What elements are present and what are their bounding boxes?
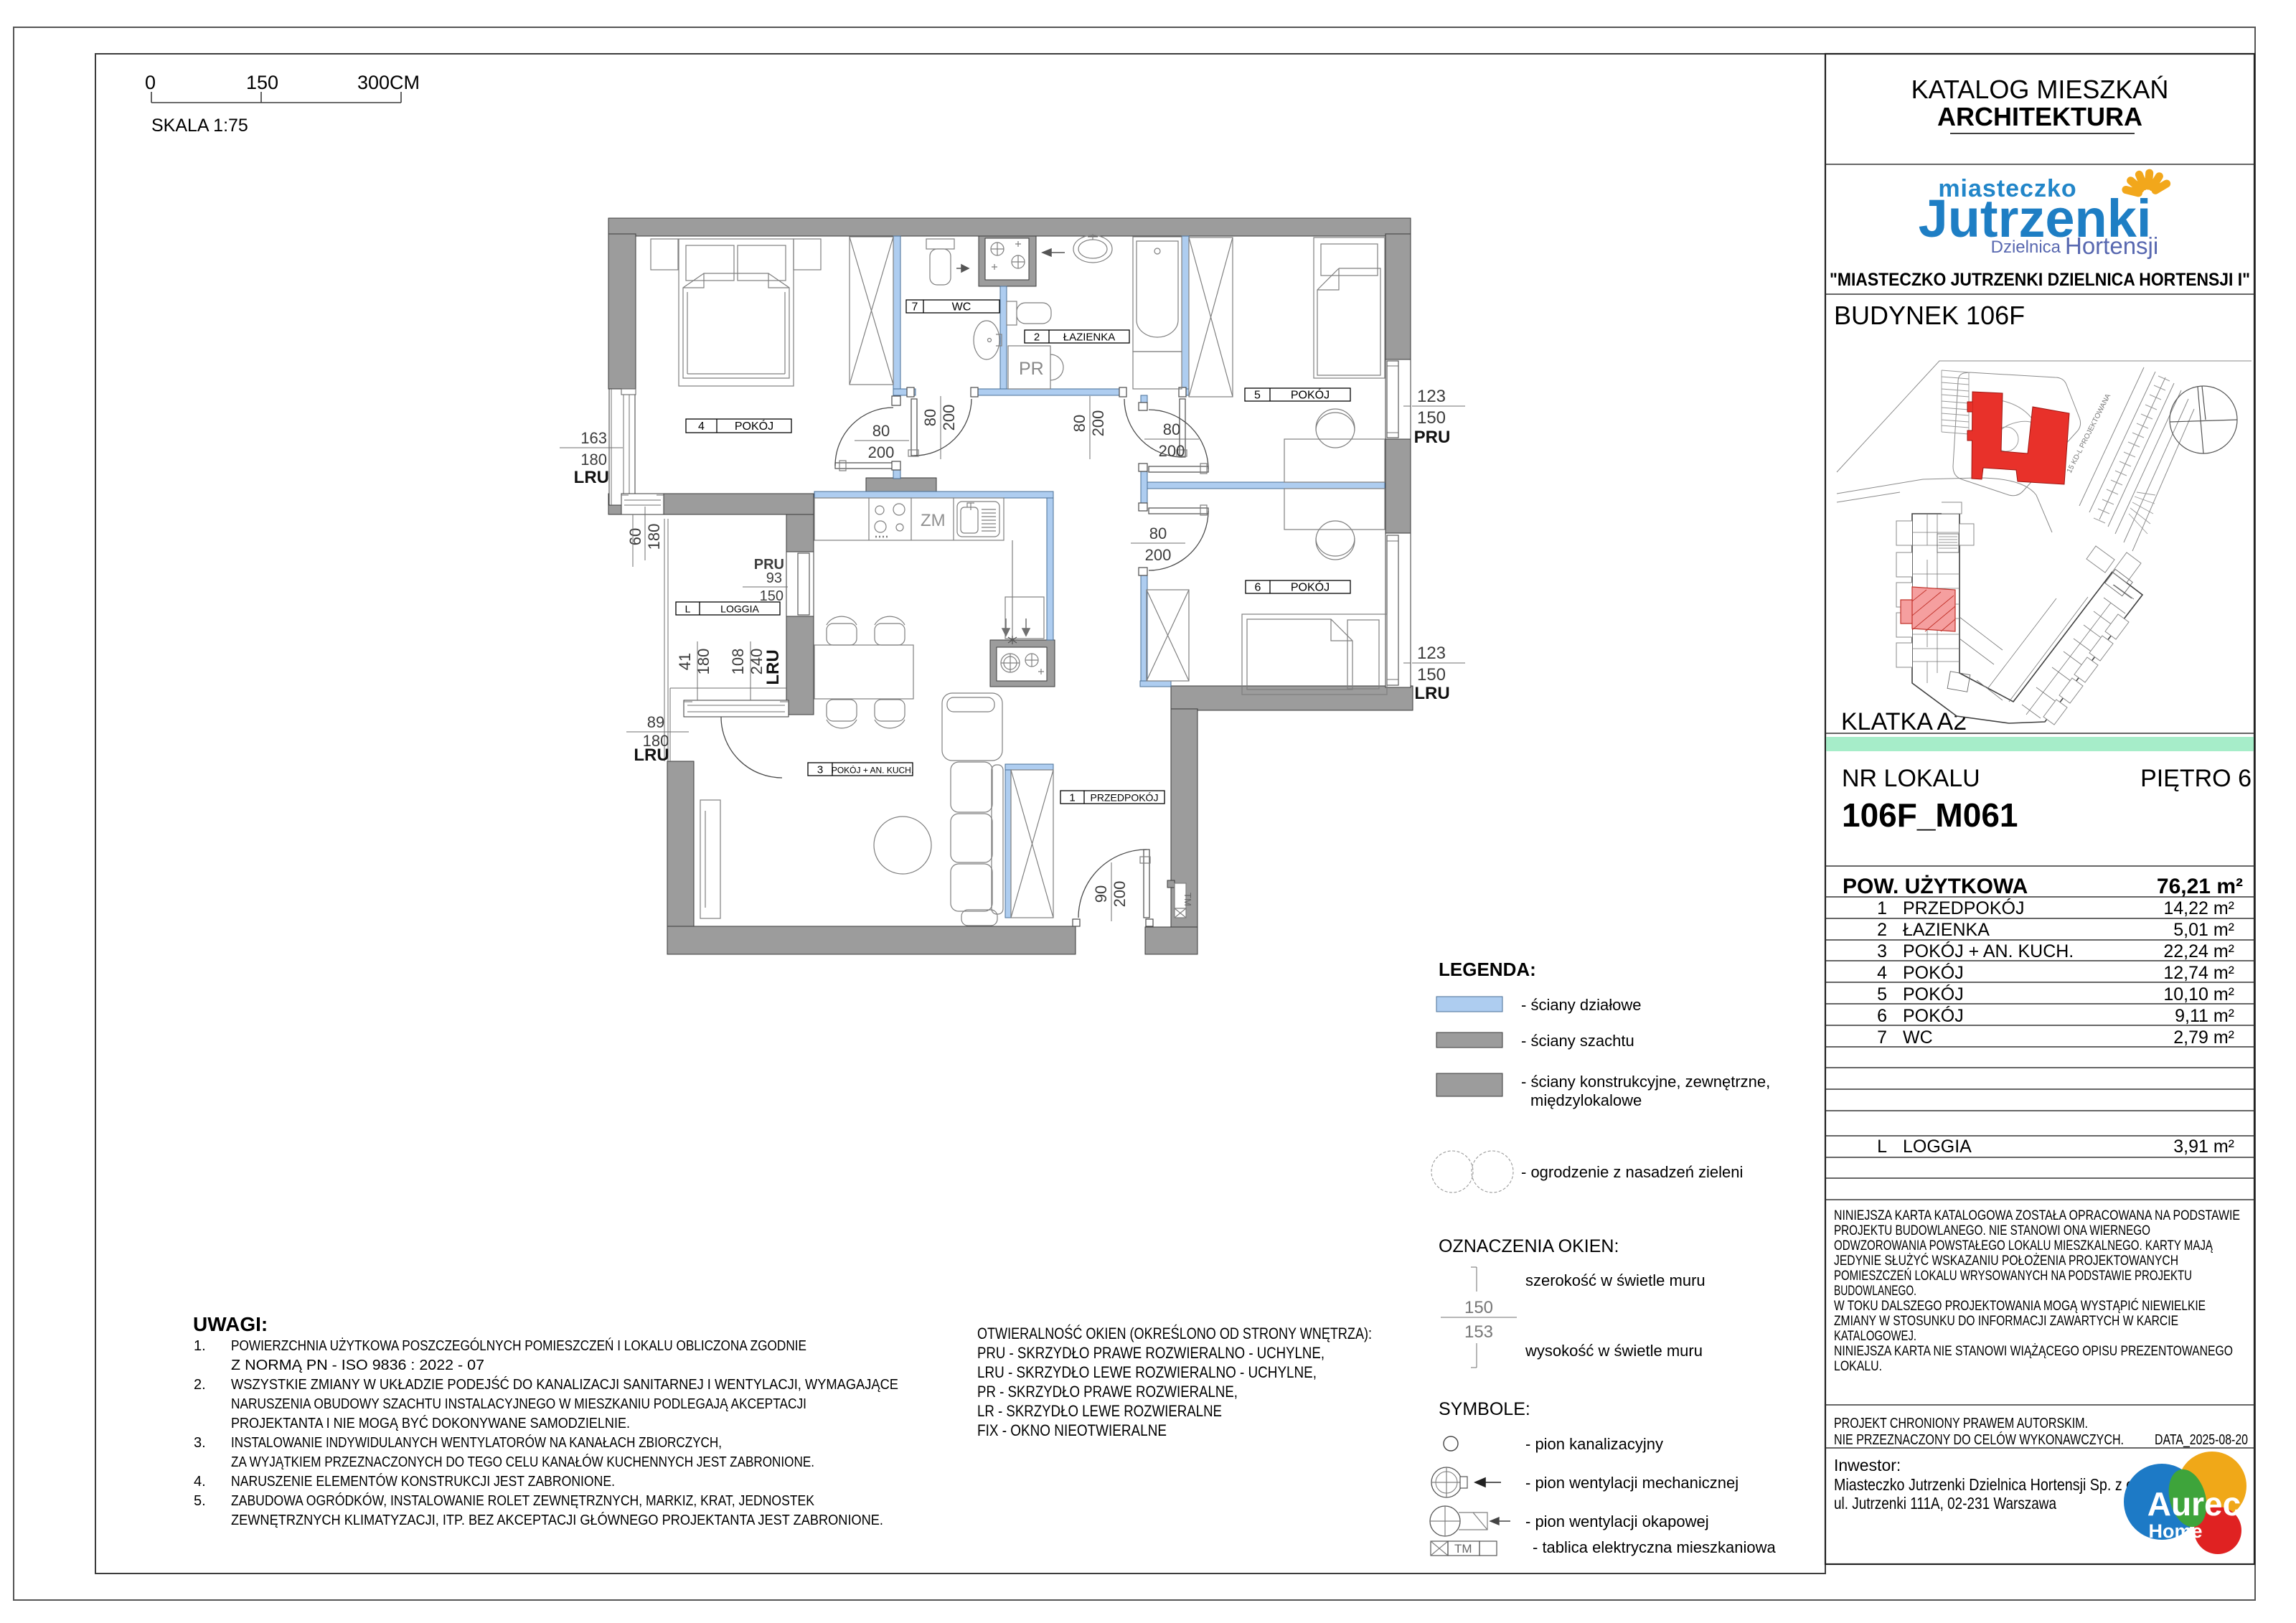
svg-text:BUDOWLANEGO.: BUDOWLANEGO. — [1834, 1284, 1916, 1299]
svg-text:PR - SKRZYDŁO PRAWE ROZWIERALN: PR - SKRZYDŁO PRAWE ROZWIERALNE, — [977, 1383, 1238, 1401]
svg-text:TM: TM — [1182, 893, 1193, 906]
svg-text:PROJEKT CHRONIONY PRAWEM AUTOR: PROJEKT CHRONIONY PRAWEM AUTORSKIM. — [1834, 1416, 2088, 1431]
svg-text:PIĘTRO 6: PIĘTRO 6 — [2140, 765, 2252, 792]
svg-text:200: 200 — [940, 405, 958, 431]
svg-text:KLATKA A2: KLATKA A2 — [1841, 708, 1967, 735]
svg-text:POKÓJ: POKÓJ — [1903, 1005, 1964, 1026]
svg-text:PRU - SKRZYDŁO PRAWE ROZWIERAL: PRU - SKRZYDŁO PRAWE ROZWIERALNO - UCHYL… — [977, 1344, 1325, 1362]
svg-text:90: 90 — [1092, 885, 1110, 903]
svg-text:OZNACZENIA OKIEN:: OZNACZENIA OKIEN: — [1439, 1236, 1619, 1256]
svg-text:4: 4 — [698, 420, 705, 433]
svg-text:80: 80 — [1149, 524, 1167, 542]
svg-text:POKÓJ: POKÓJ — [1291, 388, 1330, 402]
svg-text:Home: Home — [2148, 1520, 2202, 1542]
svg-text:180: 180 — [645, 524, 663, 550]
svg-text:POMIESZCZEŃ LOKALU WRYSOWANYCH: POMIESZCZEŃ LOKALU WRYSOWANYCH NA PODSTA… — [1834, 1269, 2192, 1284]
svg-text:80: 80 — [921, 409, 939, 426]
svg-text:1: 1 — [1877, 898, 1887, 918]
svg-text:NIE PRZEZNACZONY DO CELÓW WYKO: NIE PRZEZNACZONY DO CELÓW WYKONAWCZYCH. — [1834, 1431, 2124, 1448]
svg-text:Inwestor:: Inwestor: — [1834, 1456, 1901, 1474]
svg-text:LRU: LRU — [1414, 684, 1449, 703]
svg-text:Aurec: Aurec — [2147, 1485, 2241, 1523]
svg-text:93: 93 — [766, 570, 782, 586]
svg-text:108: 108 — [729, 649, 747, 675]
svg-text:300CM: 300CM — [357, 72, 420, 93]
svg-text:106F_M061: 106F_M061 — [1842, 796, 2018, 834]
svg-text:7: 7 — [912, 301, 918, 314]
svg-text:SYMBOLE:: SYMBOLE: — [1439, 1399, 1530, 1419]
svg-text:2: 2 — [1034, 331, 1040, 344]
svg-text:3.: 3. — [194, 1435, 206, 1451]
svg-text:153: 153 — [1464, 1322, 1493, 1342]
svg-text:80: 80 — [1071, 415, 1088, 432]
svg-text:6: 6 — [1877, 1006, 1887, 1026]
svg-text:PROJEKTU BUDOWLANEGO. NIE STAN: PROJEKTU BUDOWLANEGO. NIE STANOWI ONA WI… — [1834, 1223, 2150, 1238]
svg-text:- pion wentylacji mechanicznej: - pion wentylacji mechanicznej — [1525, 1474, 1739, 1492]
svg-text:80: 80 — [1163, 420, 1180, 438]
svg-text:TM: TM — [1454, 1542, 1472, 1556]
svg-text:WC: WC — [952, 301, 971, 314]
svg-text:LRU: LRU — [763, 649, 783, 685]
svg-text:ZEWNĘTRZNYCH KLIMATYZACJI, IT: ZEWNĘTRZNYCH KLIMATYZACJI, ITP. BEZ AKCE… — [231, 1512, 883, 1528]
svg-text:NINIEJSZA KARTA NIE STANOWI WI: NINIEJSZA KARTA NIE STANOWI WIĄŻĄCEGO OP… — [1834, 1344, 2233, 1359]
svg-text:wysokość w świetle muru: wysokość w świetle muru — [1525, 1342, 1703, 1360]
svg-text:L: L — [1877, 1137, 1887, 1157]
svg-text:NARUSZENIA OBUDOWY SZACHTU INS: NARUSZENIA OBUDOWY SZACHTU INSTALACYJNEG… — [231, 1396, 806, 1412]
svg-text:200: 200 — [868, 443, 895, 461]
svg-text:150: 150 — [1417, 408, 1446, 428]
svg-text:POKÓJ + AN. KUCH.: POKÓJ + AN. KUCH. — [832, 765, 913, 776]
svg-text:LRU: LRU — [634, 745, 669, 765]
svg-text:WSZYSTKIE ZMIANY W UKŁADZIE PO: WSZYSTKIE ZMIANY W UKŁADZIE PODEJŚĆ DO K… — [231, 1375, 898, 1393]
svg-text:"MIASTECZKO JUTRZENKI DZIELNIC: "MIASTECZKO JUTRZENKI DZIELNICA HORTENSJ… — [1830, 270, 2250, 290]
svg-text:- pion wentylacji okapowej: - pion wentylacji okapowej — [1525, 1513, 1709, 1530]
svg-text:ZABUDOWA OGRÓDKÓW, INSTALOWANI: ZABUDOWA OGRÓDKÓW, INSTALOWANIE ROLET ZE… — [231, 1492, 815, 1509]
svg-text:12,74 m²: 12,74 m² — [2163, 963, 2234, 983]
svg-text:180: 180 — [695, 649, 712, 675]
svg-text:150: 150 — [246, 72, 278, 93]
svg-text:INSTALOWANIE INDYWIDULANYCH WE: INSTALOWANIE INDYWIDULANYCH WENTYLATORÓW… — [231, 1434, 722, 1451]
svg-text:5: 5 — [1877, 984, 1887, 1005]
svg-text:POKÓJ: POKÓJ — [1903, 962, 1964, 983]
svg-text:200: 200 — [1159, 442, 1185, 460]
svg-text:NINIEJSZA KARTA KATALOGOWA ZOS: NINIEJSZA KARTA KATALOGOWA ZOSTAŁA OPRAC… — [1834, 1208, 2240, 1223]
svg-text:- ściany działowe: - ściany działowe — [1521, 996, 1642, 1014]
svg-text:60: 60 — [626, 528, 644, 545]
svg-text:LRU - SKRZYDŁO LEWE ROZWIERALN: LRU - SKRZYDŁO LEWE ROZWIERALNO - UCHYLN… — [977, 1363, 1317, 1381]
svg-text:5: 5 — [1254, 390, 1261, 402]
svg-text:9,11 m²: 9,11 m² — [2175, 1006, 2234, 1026]
svg-text:0: 0 — [145, 72, 156, 93]
svg-text:międzylokalowe: międzylokalowe — [1530, 1091, 1642, 1109]
svg-text:ZA WYJĄTKIEM PRZEZNACZONYCH DO: ZA WYJĄTKIEM PRZEZNACZONYCH DO TEGO CELU… — [231, 1454, 814, 1470]
svg-text:2.: 2. — [194, 1377, 206, 1393]
svg-text:123: 123 — [1417, 387, 1446, 406]
svg-text:KATALOG MIESZKAŃ: KATALOG MIESZKAŃ — [1911, 75, 2169, 104]
svg-text:LR - SKRZYDŁO LEWE ROZWIERALNE: LR - SKRZYDŁO LEWE ROZWIERALNE — [977, 1402, 1222, 1420]
svg-text:6: 6 — [1255, 582, 1261, 594]
svg-text:4: 4 — [1877, 963, 1887, 983]
svg-text:ul. Jutrzenki 111A, 02-231 War: ul. Jutrzenki 111A, 02-231 Warszawa — [1834, 1494, 2056, 1513]
svg-text:W TOKU DALSZEGO PROJEKTOWANIA: W TOKU DALSZEGO PROJEKTOWANIA MOGĄ WYSTĄ… — [1834, 1298, 2206, 1314]
svg-text:10,10 m²: 10,10 m² — [2163, 984, 2234, 1005]
svg-text:NARUSZENIE ELEMENTÓW KONSTRUKC: NARUSZENIE ELEMENTÓW KONSTRUKCJI JEST ZA… — [231, 1473, 615, 1490]
svg-text:ŁAZIENKA: ŁAZIENKA — [1063, 331, 1116, 344]
svg-text:7: 7 — [1877, 1027, 1887, 1048]
svg-text:L: L — [685, 603, 691, 615]
svg-text:UWAGI:: UWAGI: — [193, 1313, 268, 1335]
svg-text:4.: 4. — [194, 1474, 206, 1490]
svg-text:NR LOKALU: NR LOKALU — [1842, 765, 1980, 792]
svg-text:SKALA 1:75: SKALA 1:75 — [151, 116, 248, 136]
svg-text:14,22 m²: 14,22 m² — [2163, 898, 2234, 918]
svg-text:BUDYNEK 106F: BUDYNEK 106F — [1834, 301, 2025, 330]
svg-text:Miasteczko Jutrzenki Dzielnica: Miasteczko Jutrzenki Dzielnica Hortensji… — [1834, 1475, 2150, 1494]
svg-text:5.: 5. — [194, 1493, 206, 1509]
svg-text:LEGENDA:: LEGENDA: — [1439, 959, 1536, 980]
svg-text:200: 200 — [1145, 546, 1172, 564]
svg-text:ODWZOROWANIA POWSTAŁEGO LOKALU: ODWZOROWANIA POWSTAŁEGO LOKALU MIESZKALN… — [1834, 1238, 2213, 1253]
svg-text:PR: PR — [1019, 359, 1044, 379]
svg-text:200: 200 — [1111, 881, 1129, 908]
svg-text:1.: 1. — [194, 1338, 206, 1354]
svg-text:WC: WC — [1903, 1027, 1933, 1048]
svg-text:LRU: LRU — [574, 468, 609, 487]
svg-text:KATALOGOWEJ.: KATALOGOWEJ. — [1834, 1329, 1916, 1344]
svg-text:22,24 m²: 22,24 m² — [2163, 941, 2234, 961]
svg-text:POKÓJ: POKÓJ — [1291, 580, 1330, 594]
svg-text:- tablica elektryczna mieszkan: - tablica elektryczna mieszkaniowa — [1533, 1538, 1776, 1556]
svg-text:ZMIANY W STOSUNKU DO INFORMACJ: ZMIANY W STOSUNKU DO INFORMACJI ZAWARTYC… — [1834, 1314, 2178, 1329]
svg-text:POKÓJ: POKÓJ — [735, 419, 773, 433]
svg-text:76,21 m²: 76,21 m² — [2157, 875, 2243, 898]
svg-text:PRU: PRU — [1414, 428, 1451, 447]
svg-text:POW. UŻYTKOWA: POW. UŻYTKOWA — [1843, 875, 2028, 898]
svg-text:2,79 m²: 2,79 m² — [2173, 1027, 2234, 1048]
svg-text:3,91 m²: 3,91 m² — [2173, 1137, 2234, 1157]
svg-text:150: 150 — [760, 588, 784, 604]
svg-text:- ściany szachtu: - ściany szachtu — [1521, 1032, 1634, 1050]
svg-text:3: 3 — [817, 764, 823, 776]
svg-text:ARCHITEKTURA: ARCHITEKTURA — [1937, 102, 2142, 131]
svg-text:szerokość w świetle muru: szerokość w świetle muru — [1525, 1271, 1705, 1289]
svg-text:ZM: ZM — [921, 511, 946, 530]
svg-text:- ogrodzenie z nasadzeń zielen: - ogrodzenie z nasadzeń zieleni — [1521, 1163, 1743, 1181]
svg-text:Hortensji: Hortensji — [2065, 232, 2158, 259]
svg-text:180: 180 — [580, 451, 607, 469]
svg-text:LOGGIA: LOGGIA — [1903, 1137, 1972, 1157]
svg-text:3: 3 — [1877, 941, 1887, 961]
svg-text:41: 41 — [676, 653, 694, 670]
svg-text:JEDYNIE SŁUŻYĆ WSKAZANIU POŁOŻ: JEDYNIE SŁUŻYĆ WSKAZANIU POŁOŻENIA PROJE… — [1834, 1253, 2178, 1269]
svg-text:5,01 m²: 5,01 m² — [2173, 920, 2234, 940]
svg-text:Dzielnica: Dzielnica — [1991, 237, 2061, 257]
svg-text:DATA_2025-08-20: DATA_2025-08-20 — [2155, 1432, 2248, 1448]
svg-text:PRZEDPOKÓJ: PRZEDPOKÓJ — [1903, 898, 2024, 918]
svg-text:POWIERZCHNIA UŻYTKOWA POSZCZEG: POWIERZCHNIA UŻYTKOWA POSZCZEGÓLNYCH POM… — [231, 1337, 806, 1354]
svg-text:ŁAZIENKA: ŁAZIENKA — [1903, 920, 1990, 940]
svg-text:OTWIERALNOŚĆ OKIEN (OKREŚLONO: OTWIERALNOŚĆ OKIEN (OKREŚLONO OD STRONY … — [977, 1325, 1372, 1342]
svg-text:LOGGIA: LOGGIA — [720, 603, 759, 615]
svg-text:FIX - OKNO NIEOTWIERALNE: FIX - OKNO NIEOTWIERALNE — [977, 1421, 1167, 1439]
svg-text:POKÓJ: POKÓJ — [1903, 984, 1964, 1005]
svg-text:POKÓJ + AN. KUCH.: POKÓJ + AN. KUCH. — [1903, 941, 2074, 961]
svg-text:Z NORMĄ PN - ISO 9836 : 2022 -: Z NORMĄ PN - ISO 9836 : 2022 - 07 — [231, 1358, 484, 1373]
svg-text:150: 150 — [1417, 665, 1446, 685]
svg-text:123: 123 — [1417, 644, 1446, 663]
svg-text:200: 200 — [1089, 410, 1107, 437]
svg-text:PROJEKTANTA I NIE MOGĄ BYĆ DOK: PROJEKTANTA I NIE MOGĄ BYĆ DOKONYWANE SA… — [231, 1415, 630, 1431]
svg-text:1: 1 — [1069, 792, 1075, 804]
svg-text:80: 80 — [872, 422, 890, 440]
svg-text:163: 163 — [580, 429, 607, 447]
svg-text:- pion kanalizacyjny: - pion kanalizacyjny — [1525, 1435, 1663, 1453]
svg-text:89: 89 — [647, 713, 664, 731]
svg-text:LOKALU.: LOKALU. — [1834, 1359, 1882, 1374]
svg-text:2: 2 — [1877, 920, 1887, 940]
svg-text:150: 150 — [1464, 1298, 1493, 1317]
svg-text:PRZEDPOKÓJ: PRZEDPOKÓJ — [1091, 792, 1159, 804]
svg-text:- ściany konstrukcyjne, zewnęt: - ściany konstrukcyjne, zewnętrzne, — [1521, 1073, 1770, 1091]
